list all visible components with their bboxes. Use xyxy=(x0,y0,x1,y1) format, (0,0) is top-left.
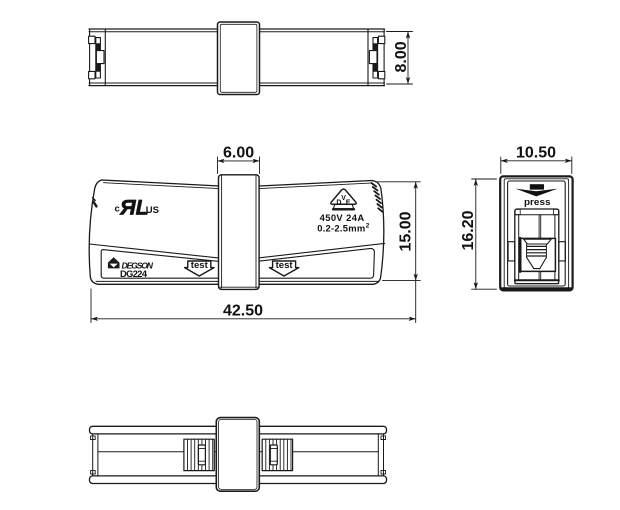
svg-text:6.00: 6.00 xyxy=(223,144,254,161)
svg-text:16.20: 16.20 xyxy=(460,210,477,250)
svg-text:42.50: 42.50 xyxy=(223,302,263,319)
svg-text:test: test xyxy=(276,260,294,271)
svg-text:ЯL: ЯL xyxy=(119,195,149,219)
svg-text:0.2-2.5mm: 0.2-2.5mm xyxy=(317,222,365,233)
svg-text:15.00: 15.00 xyxy=(398,211,415,251)
svg-text:US: US xyxy=(146,205,159,216)
svg-text:10.50: 10.50 xyxy=(516,144,556,161)
svg-text:E: E xyxy=(346,200,351,207)
svg-text:8.00: 8.00 xyxy=(393,41,410,72)
svg-text:D: D xyxy=(336,199,341,206)
svg-text:2: 2 xyxy=(366,222,370,229)
svg-text:c: c xyxy=(115,204,120,215)
svg-text:DG224: DG224 xyxy=(120,269,148,279)
svg-text:test: test xyxy=(191,260,209,271)
svg-text:press: press xyxy=(524,197,551,207)
